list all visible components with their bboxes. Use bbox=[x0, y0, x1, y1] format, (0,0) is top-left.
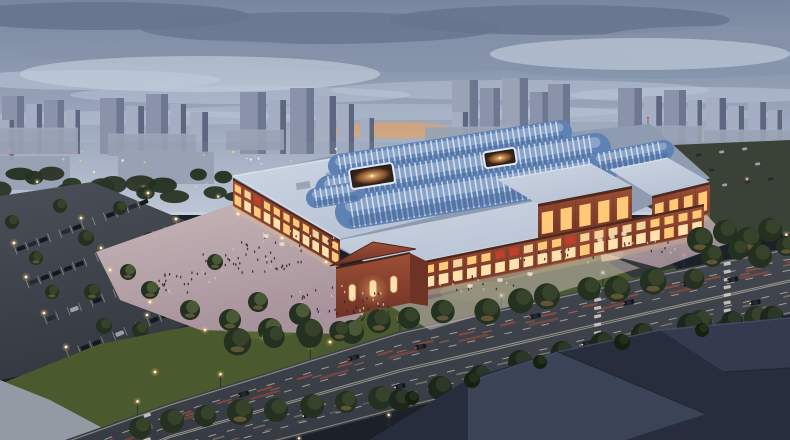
rendering-aerial-mall-dusk bbox=[0, 0, 790, 440]
scene-canvas bbox=[0, 0, 790, 440]
